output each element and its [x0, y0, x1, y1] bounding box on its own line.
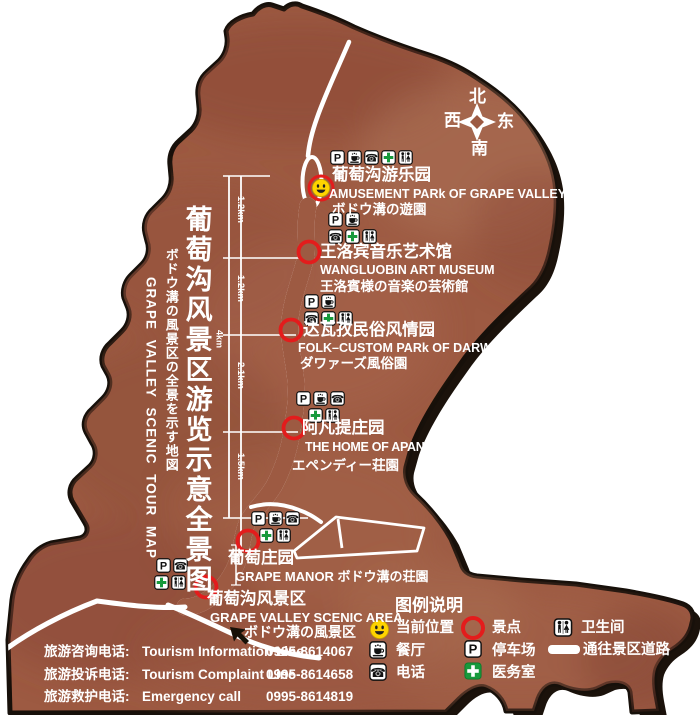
map-title-en: GRAPE VALLEY SCENIC TOUR MAP — [143, 277, 157, 559]
parking-icon — [157, 559, 171, 573]
map-title-cn: 葡萄沟风景区游览示意全景图 — [182, 205, 211, 595]
phone-icon — [365, 151, 379, 165]
medical-icon — [346, 230, 360, 244]
distance-seg2-label: 1.2km — [235, 275, 245, 302]
tour-map-canvas: P ☎ — [0, 0, 700, 715]
phone-emergency-cn: 旅游救护电话: — [44, 690, 130, 704]
legend-road-label: 通往景区道路 — [583, 643, 670, 658]
road-legend-bar — [548, 645, 580, 654]
smiley-icon — [312, 179, 329, 196]
phone-info-cn: 旅游咨询电话: — [44, 645, 130, 659]
phone-emergency-en: Emergency call — [142, 690, 241, 704]
restaurant-icon — [348, 151, 362, 165]
legend-scenic-spot-label: 景点 — [492, 621, 521, 636]
toilet-icon — [363, 230, 377, 244]
legend-current-location-label: 当前位置 — [396, 621, 454, 636]
attraction-apandi-cn: 阿凡提庄园 — [302, 420, 385, 437]
restaurant-icon — [314, 392, 328, 406]
phone-complaint-cn: 旅游投诉电话: — [44, 668, 130, 682]
phone-emergency-number: 0995-8614819 — [266, 690, 353, 704]
legend-medical-label: 医务室 — [492, 666, 536, 681]
restaurant-icon — [322, 295, 336, 309]
parking-icon — [465, 641, 481, 657]
parking-icon — [305, 295, 319, 309]
attraction-scenic-area-cn: 葡萄沟风景区 — [207, 591, 306, 608]
medical-icon — [465, 663, 481, 679]
compass-south-label: 南 — [471, 140, 488, 158]
legend-title: 图例说明 — [395, 597, 463, 615]
attraction-apandi-jp: エペンディー荘園 — [292, 459, 399, 473]
toilet-icon — [399, 151, 413, 165]
attraction-amusement-en: AMUSEMENT PARk OF GRAPE VALLEY — [329, 188, 566, 201]
phone-info-number: 0995-8614067 — [266, 645, 353, 659]
medical-icon — [382, 151, 396, 165]
legend-phone-label: 电话 — [396, 666, 425, 681]
legend-parking-label: 停车场 — [492, 644, 536, 659]
map-title-jp: ボドウ溝の風景区の全景を示す地図 — [164, 248, 178, 472]
parking-icon — [252, 512, 266, 526]
attraction-museum-jp: 王洛賓様の音楽の芸術館 — [320, 280, 469, 294]
phone-icon — [331, 392, 345, 406]
restaurant-icon — [370, 642, 386, 658]
phone-icon — [370, 664, 386, 680]
phone-icon — [286, 512, 300, 526]
phone-icon — [329, 230, 343, 244]
phone-complaint-number: 0995-8614658 — [266, 668, 353, 682]
attraction-scenic-area-jp: ボドウ溝の風景区 — [244, 625, 356, 640]
attraction-darwaz-jp: ダワァーズ風俗園 — [300, 357, 407, 371]
attraction-scenic-area-en: GRAPE VALLEY SCENIC AREA — [210, 611, 403, 625]
parking-icon — [331, 151, 345, 165]
medical-icon — [260, 529, 274, 543]
parking-icon — [297, 392, 311, 406]
distance-seg4-label: 1.5km — [235, 453, 245, 480]
legend-restaurant-label: 餐厅 — [396, 644, 425, 659]
distance-seg1-label: 1.2km — [235, 196, 245, 223]
distance-total-label: 4km — [214, 330, 224, 348]
attraction-museum-en: WANGLUOBIN ART MUSEUM — [320, 264, 495, 277]
attraction-museum-cn: 王洛宾音乐艺术馆 — [320, 244, 452, 261]
restaurant-icon — [269, 512, 283, 526]
attraction-apandi-en: THE HOME OF APANDI — [305, 441, 436, 454]
distance-seg3-label: 2.1km — [235, 362, 245, 389]
attraction-manor-en: GRAPE MANOR ボドウ溝の荘園 — [235, 570, 429, 584]
toilet-icon — [554, 619, 571, 636]
legend-toilet-label: 卫生间 — [581, 621, 625, 636]
attraction-amusement-cn: 葡萄沟游乐园 — [332, 167, 431, 184]
attraction-darwaz-en: FOLK–CUSTOM PARk OF DARWAZ — [298, 342, 508, 355]
attraction-amusement-jp: ボドウ溝の遊園 — [332, 203, 427, 217]
compass-east-label: 东 — [497, 113, 514, 131]
attraction-darwaz-cn: 达瓦孜民俗风情园 — [303, 322, 435, 339]
toilet-icon — [277, 529, 291, 543]
attraction-manor-cn: 葡萄庄园 — [228, 550, 294, 567]
medical-icon — [155, 576, 169, 590]
compass-north-label: 北 — [469, 88, 486, 106]
compass-west-label: 西 — [444, 112, 461, 130]
